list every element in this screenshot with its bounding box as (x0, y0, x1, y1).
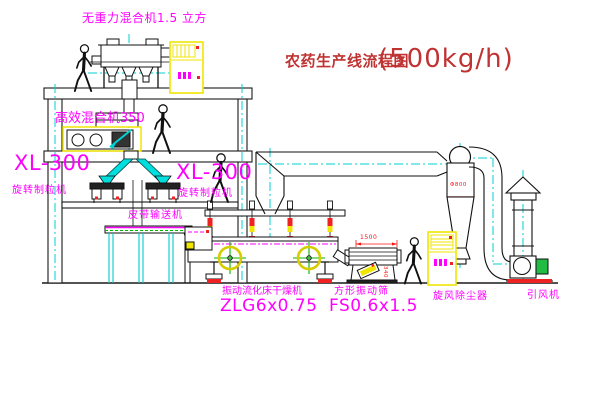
person-figure (75, 45, 91, 91)
label-granulator-left-model: XL-300 (14, 153, 90, 174)
cabinet-display-glyphs (434, 259, 447, 266)
sieve-dimension-line (356, 240, 397, 247)
dimension-cyclone-diameter: Φ800 (450, 183, 467, 189)
rotary-granulator-right (146, 176, 180, 203)
control-cabinet-lower (428, 232, 456, 285)
diagram-title-capacity: (500kg/h) (378, 46, 514, 72)
label-granulator-right-name: 旋转制粒机 (178, 189, 233, 199)
induced-draft-fan-machine (506, 256, 553, 283)
label-sieve-model: FS0.6x1.5 (329, 298, 418, 315)
dryer-feed-inlet (185, 227, 212, 250)
person-figure (405, 238, 421, 284)
label-fan: 引风机 (527, 291, 560, 301)
control-cabinet-upper (170, 42, 203, 93)
label-granulator-right-model: XL-300 (176, 162, 252, 183)
rotary-granulator-left (90, 176, 124, 203)
label-dryer-model: ZLG6x0.75 (220, 298, 318, 315)
label-granulator-left-name: 旋转制粒机 (12, 186, 67, 196)
vibrating-sieve-machine (345, 240, 401, 283)
label-high-eff-mixer: 高效混合机350 (55, 112, 145, 125)
fan-suction-pipe (469, 147, 512, 280)
cabinet-display-glyphs (178, 72, 191, 79)
label-belt-conveyor: 皮带输送机 (128, 211, 183, 221)
dimension-sieve-length: 1500 (360, 235, 377, 241)
dimension-sieve-height: 340 (382, 266, 388, 278)
label-cyclone: 旋风除尘器 (433, 292, 488, 302)
belt-conveyor-machine (105, 226, 198, 283)
person-figure (153, 105, 170, 153)
label-gravity-mixer: 无重力混合机1.5 立方 (82, 12, 207, 24)
process-flow-diagram: 无重力混合机1.5 立方 高效混合机350 XL-300 旋转制粒机 XL-30… (0, 0, 600, 403)
fluid-bed-dryer-machine (185, 201, 352, 283)
exhaust-duct (256, 152, 447, 214)
